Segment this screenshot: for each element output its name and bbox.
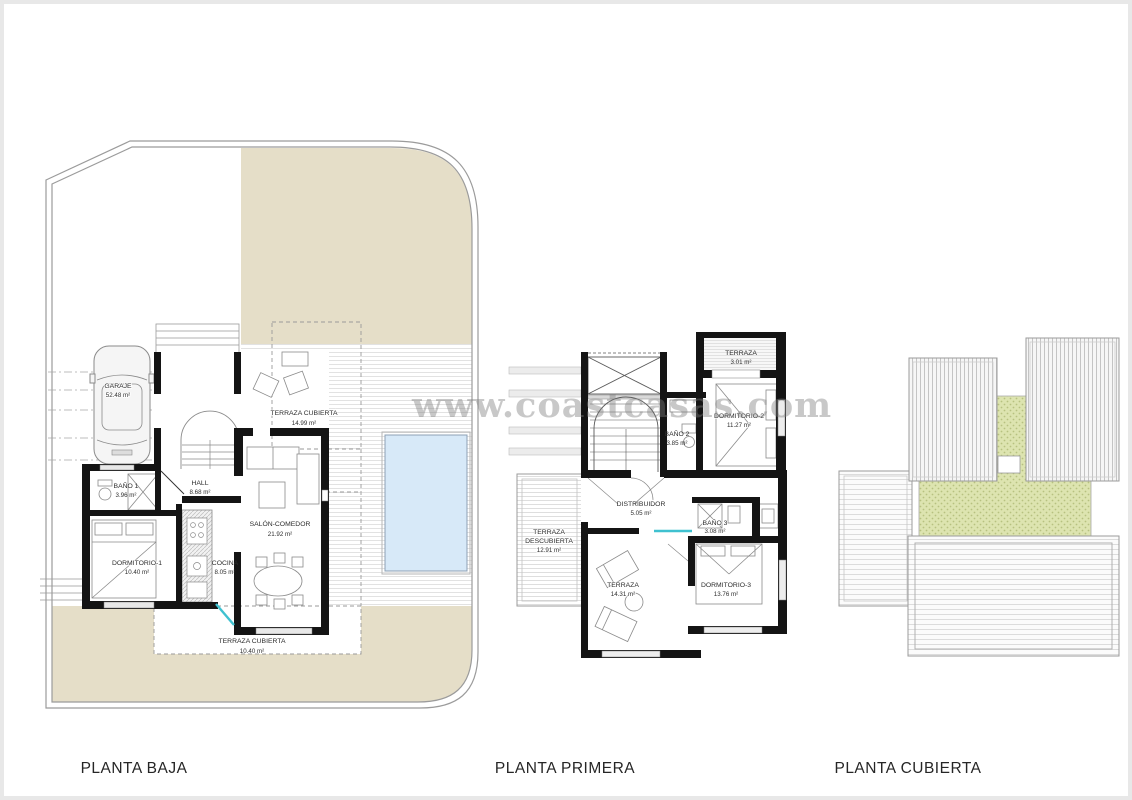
- roof-top-left: [909, 358, 997, 481]
- svg-text:12.91 m²: 12.91 m²: [537, 547, 561, 554]
- svg-text:3.08 m²: 3.08 m²: [705, 528, 726, 535]
- pergola-louvres: [509, 367, 581, 455]
- svg-text:TERRAZA: TERRAZA: [725, 350, 757, 357]
- svg-text:14.31 m²: 14.31 m²: [611, 591, 635, 598]
- svg-text:8.05 m²: 8.05 m²: [215, 569, 236, 576]
- svg-text:3.85 m²: 3.85 m²: [667, 440, 688, 447]
- plan-cubierta-drawing: [829, 329, 1129, 669]
- svg-text:SALÓN-COMEDOR: SALÓN-COMEDOR: [250, 519, 311, 528]
- plan-title-cubierta: PLANTA CUBIERTA: [834, 760, 981, 778]
- kitchen-counter-icon: [182, 510, 212, 602]
- svg-text:BAÑO 3: BAÑO 3: [703, 518, 728, 527]
- svg-text:13.76 m²: 13.76 m²: [714, 591, 738, 598]
- svg-text:HALL: HALL: [191, 480, 208, 487]
- svg-text:21.92 m²: 21.92 m²: [268, 531, 292, 538]
- room-label-bano3: BAÑO 3 3.08 m²: [703, 518, 728, 535]
- car-icon: [90, 346, 154, 464]
- svg-text:TERRAZA CUBIERTA: TERRAZA CUBIERTA: [219, 638, 286, 645]
- svg-text:11.27 m²: 11.27 m²: [727, 422, 751, 429]
- svg-text:5.05 m²: 5.05 m²: [631, 510, 652, 517]
- svg-text:3.01 m²: 3.01 m²: [731, 359, 752, 366]
- svg-text:DISTRIBUIDOR: DISTRIBUIDOR: [617, 501, 666, 508]
- svg-text:BAÑO 2: BAÑO 2: [665, 429, 690, 438]
- svg-text:TERRAZA: TERRAZA: [607, 582, 639, 589]
- bed-icon: [92, 520, 156, 598]
- plan-title-baja: PLANTA BAJA: [81, 760, 188, 778]
- svg-text:DORMITORIO-2: DORMITORIO-2: [714, 413, 764, 420]
- svg-text:DESCUBIERTA: DESCUBIERTA: [525, 538, 573, 545]
- svg-text:GARAJE: GARAJE: [104, 383, 132, 390]
- plan-title-primera: PLANTA PRIMERA: [495, 760, 635, 778]
- dining-table-icon: [254, 553, 303, 609]
- svg-text:DORMITORIO-3: DORMITORIO-3: [701, 582, 751, 589]
- pool: [382, 432, 470, 574]
- plan-primera-drawing: TERRAZA 3.01 m² DORMITORIO-2 11.27 m² BA…: [504, 319, 804, 669]
- svg-text:14.99 m²: 14.99 m²: [292, 420, 316, 427]
- svg-text:BAÑO 1: BAÑO 1: [114, 481, 139, 490]
- floorplan-sheet: GARAJE 52.48 m² BAÑO 1 3.96 m² HALL 8.68…: [0, 0, 1132, 800]
- svg-text:10.40 m²: 10.40 m²: [125, 569, 149, 576]
- svg-text:8.68 m²: 8.68 m²: [190, 489, 211, 496]
- svg-text:3.96 m²: 3.96 m²: [116, 492, 137, 499]
- roof-left: [839, 471, 912, 606]
- plan-baja-drawing: GARAJE 52.48 m² BAÑO 1 3.96 m² HALL 8.68…: [34, 134, 484, 719]
- svg-text:COCINA: COCINA: [212, 560, 239, 567]
- svg-text:10.40 m²: 10.40 m²: [240, 648, 264, 655]
- roof-top-right: [1026, 338, 1119, 481]
- roof-bottom: [908, 536, 1119, 656]
- svg-text:TERRAZA CUBIERTA: TERRAZA CUBIERTA: [271, 410, 338, 417]
- svg-text:DORMITORIO-1: DORMITORIO-1: [112, 560, 162, 567]
- skylight: [998, 456, 1020, 473]
- svg-text:52.48 m²: 52.48 m²: [106, 392, 130, 399]
- svg-text:TERRAZA: TERRAZA: [533, 529, 565, 536]
